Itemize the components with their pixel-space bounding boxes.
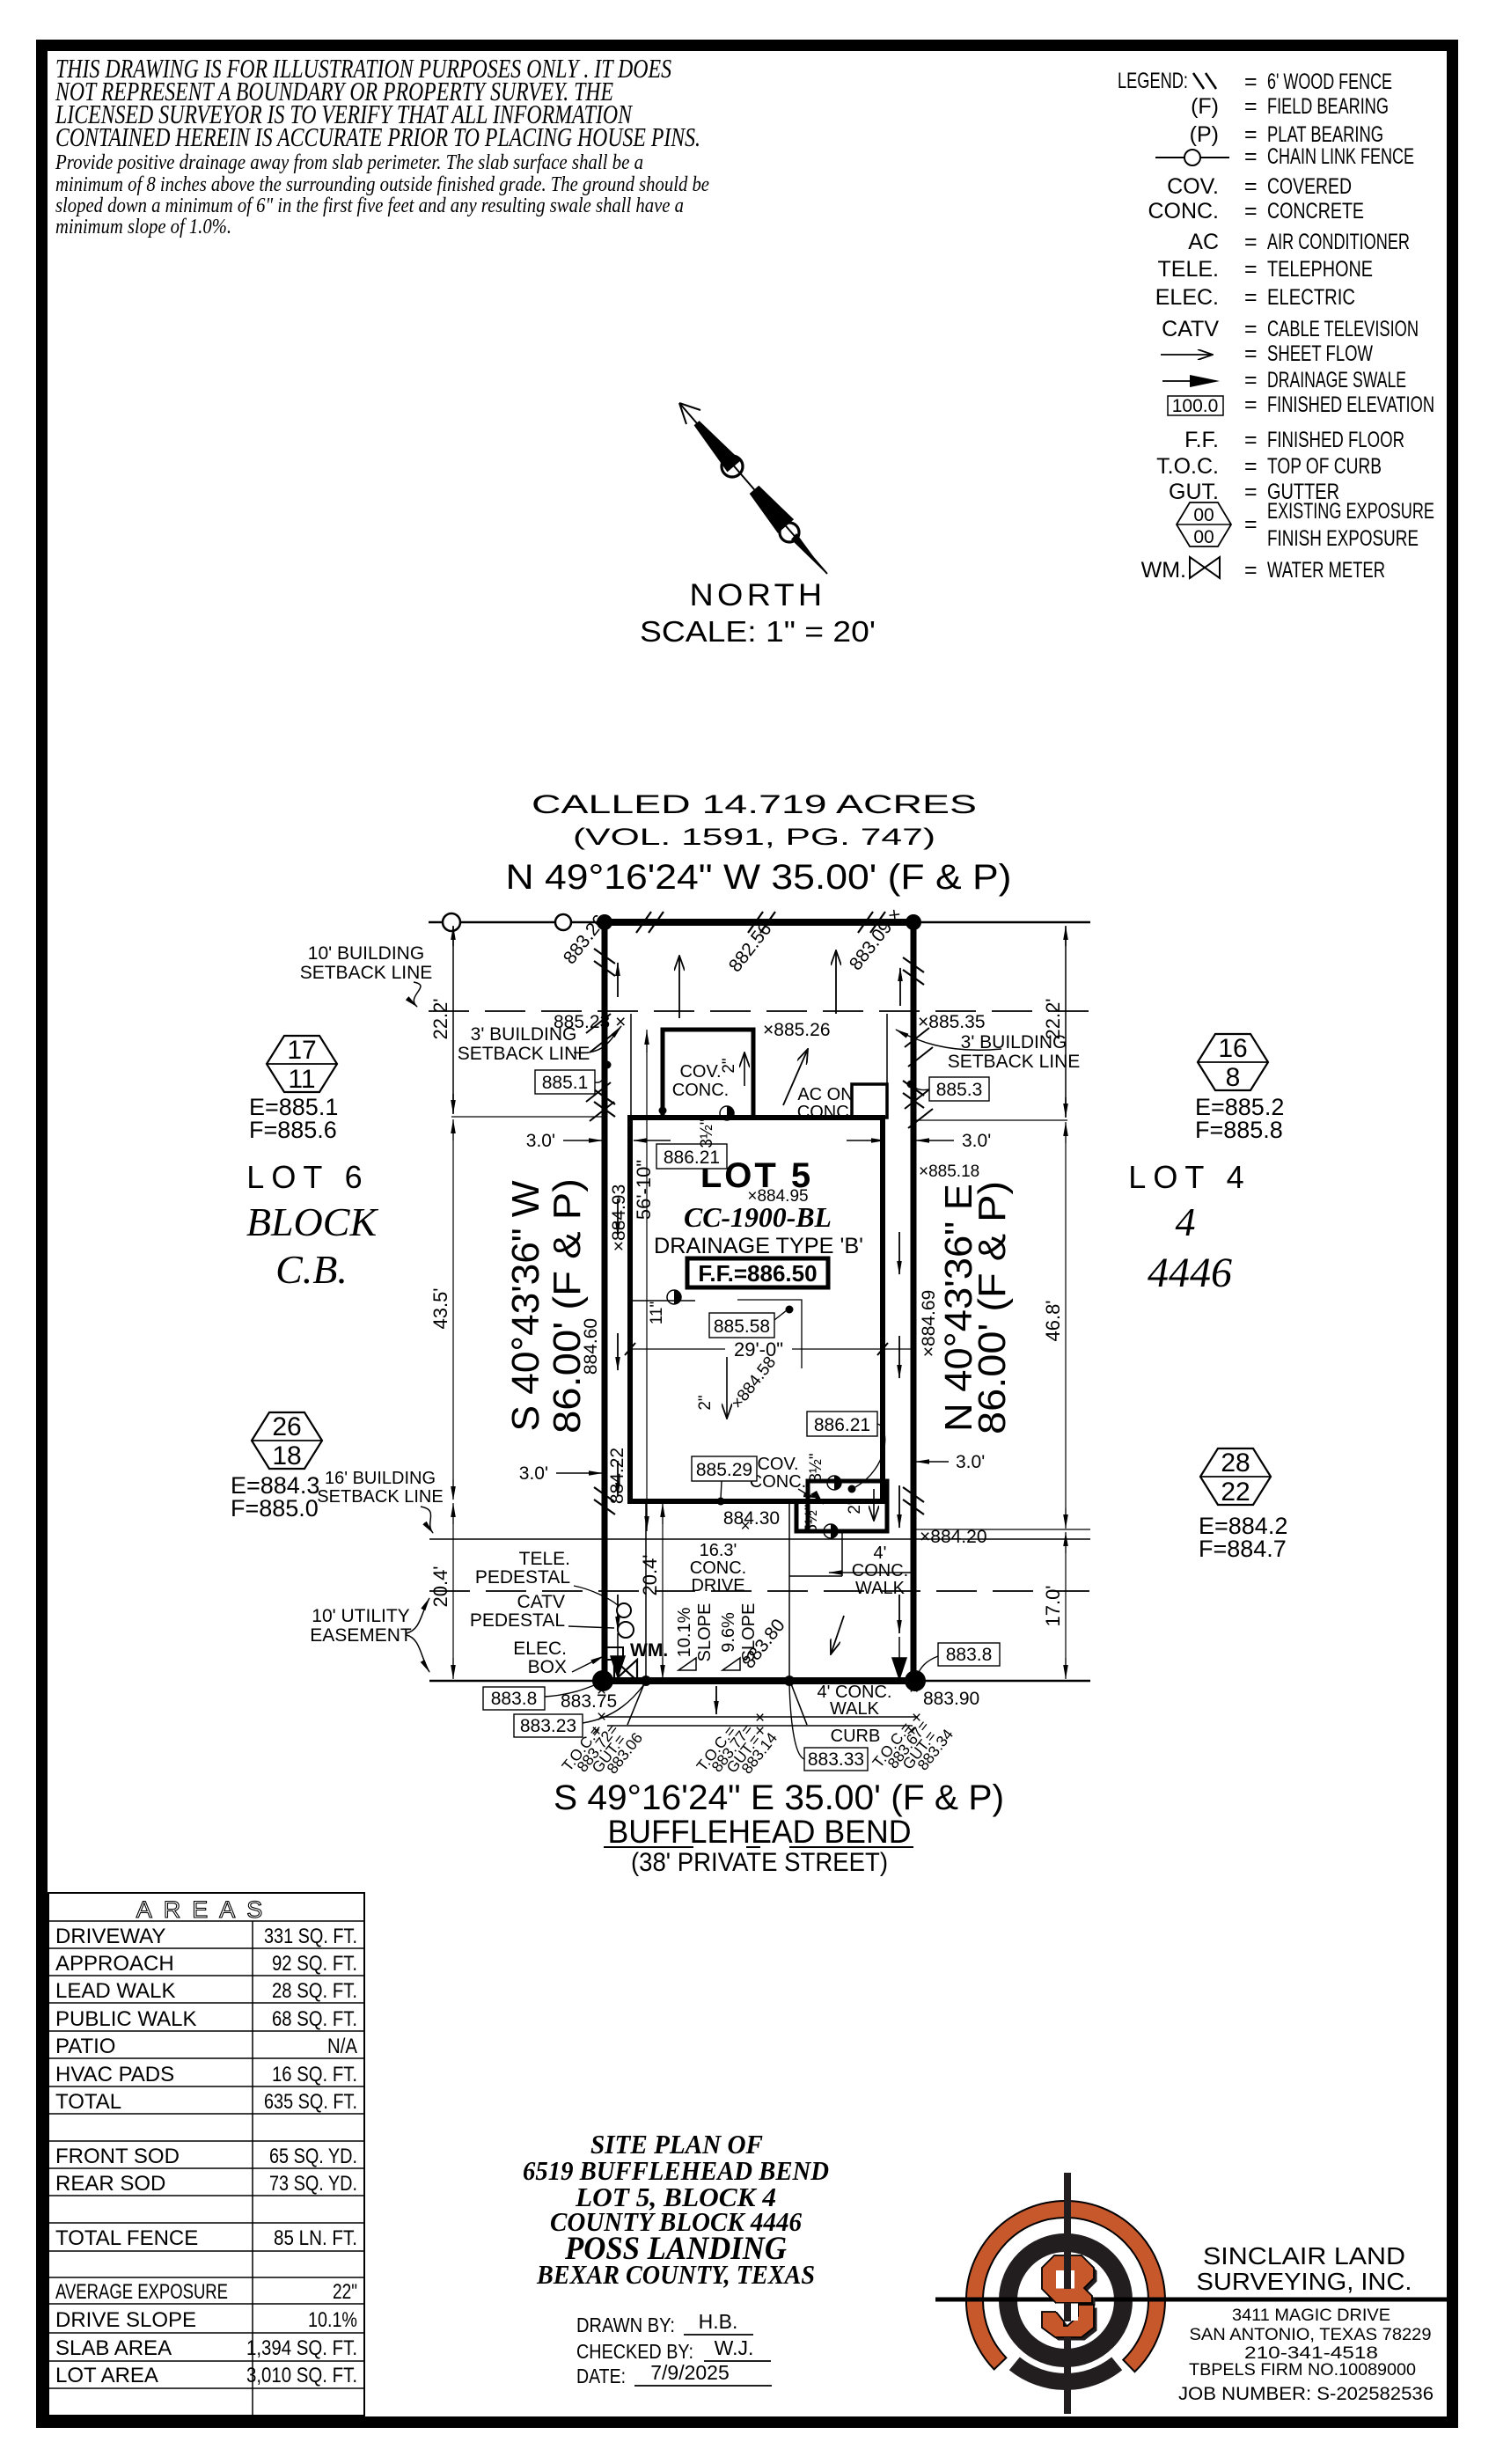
svg-text:SLAB AREA: SLAB AREA [55,2336,172,2360]
svg-text:PATIO: PATIO [55,2035,115,2058]
svg-text:00: 00 [1193,505,1214,525]
svg-text:883.75: 883.75 [561,1691,617,1712]
svg-text:COV.: COV. [757,1455,798,1474]
svg-text:BLOCK: BLOCK [246,1199,379,1244]
svg-text:=: = [1244,199,1258,224]
svg-text:CHAIN LINK FENCE: CHAIN LINK FENCE [1267,144,1414,169]
svg-text:F.F.=886.50: F.F.=886.50 [698,1260,817,1287]
svg-text:9.6%: 9.6% [719,1612,738,1653]
svg-text:FIELD BEARING: FIELD BEARING [1267,94,1389,119]
svg-text:SINCLAIR LAND: SINCLAIR LAND [1203,2242,1405,2270]
svg-text:SCALE: 1" = 20': SCALE: 1" = 20' [640,615,876,648]
svg-text:29'-0": 29'-0" [734,1338,783,1360]
svg-text:3,010 SQ. FT.: 3,010 SQ. FT. [246,2364,357,2387]
svg-text:COVERED: COVERED [1267,174,1352,199]
svg-text:883.90: 883.90 [923,1689,979,1709]
svg-text:28: 28 [1221,1448,1250,1478]
svg-text:20.4': 20.4' [639,1554,661,1595]
svg-text:92 SQ. FT.: 92 SQ. FT. [272,1952,357,1976]
svg-text:SETBACK LINE: SETBACK LINE [300,963,433,983]
svg-text:TOP OF CURB: TOP OF CURB [1267,454,1382,479]
svg-text:3.0': 3.0' [962,1131,991,1151]
svg-text:886.21: 886.21 [814,1415,870,1435]
svg-text:CONC.: CONC. [852,1561,908,1580]
svg-text:26: 26 [272,1412,301,1441]
svg-text:2": 2" [720,1058,738,1073]
svg-text:TELE.: TELE. [519,1549,570,1569]
svg-text:16: 16 [1218,1034,1247,1063]
svg-text:CATV: CATV [1162,317,1219,341]
svg-text:28 SQ. FT.: 28 SQ. FT. [272,1979,357,2003]
svg-text:17: 17 [287,1036,316,1065]
svg-text:LOT 6: LOT 6 [246,1159,369,1195]
svg-text:883.8: 883.8 [946,1645,993,1665]
svg-text:68 SQ. FT.: 68 SQ. FT. [272,2007,357,2031]
svg-text:S 49°16'24" E 35.00' (F &: S 49°16'24" E 35.00' (F & P) [554,1778,1004,1817]
svg-text:10.1%: 10.1% [675,1607,694,1657]
svg-text:SHEET FLOW: SHEET FLOW [1267,341,1373,366]
svg-text:22": 22" [333,2280,357,2304]
svg-text:=: = [1244,257,1258,282]
svg-text:CURB: CURB [831,1727,881,1746]
svg-text:F=885.8: F=885.8 [1195,1117,1283,1143]
svg-text:3.0': 3.0' [526,1131,555,1151]
svg-text:TELE.: TELE. [1158,257,1219,282]
svg-text:TOTAL: TOTAL [55,2090,121,2114]
svg-text:×884.93: ×884.93 [609,1184,629,1252]
svg-text:(VOL. 1591, PG. 747): (VOL. 1591, PG. 747) [573,824,935,850]
svg-text:886.21: 886.21 [664,1148,720,1168]
svg-text:BOX: BOX [528,1657,567,1677]
svg-text:LEAD WALK: LEAD WALK [55,1979,176,2003]
svg-text:TELEPHONE: TELEPHONE [1267,257,1373,282]
svg-text:(38' PRIVATE STREET): (38' PRIVATE STREET) [631,1848,888,1877]
svg-text:10.1%: 10.1% [308,2308,357,2332]
svg-text:885.29: 885.29 [696,1460,752,1480]
svg-text:LOT AREA: LOT AREA [55,2364,158,2387]
svg-text:2": 2" [696,1395,715,1410]
svg-text:FRONT SOD: FRONT SOD [55,2145,180,2168]
svg-text:LEGEND:: LEGEND: [1118,69,1188,93]
svg-text:86.00' (F & P): 86.00' (F & P) [546,1178,589,1434]
svg-text:3½": 3½" [807,1453,825,1482]
svg-text:×: × [740,1517,750,1536]
svg-text:SETBACK LINE: SETBACK LINE [948,1052,1081,1072]
svg-text:×: × [909,1680,919,1698]
svg-text:=: = [1244,368,1258,392]
svg-text:AIR CONDITIONER: AIR CONDITIONER [1267,230,1410,254]
svg-text:883.23: 883.23 [520,1716,576,1736]
svg-text:CONC.: CONC. [750,1472,806,1492]
svg-text:=: = [1244,454,1258,479]
svg-text:WATER METER: WATER METER [1267,558,1385,583]
svg-text:TOTAL FENCE: TOTAL FENCE [55,2226,198,2250]
svg-text:APPROACH: APPROACH [55,1952,174,1976]
svg-text:885.58: 885.58 [714,1316,770,1337]
svg-text:43.5': 43.5' [429,1287,451,1329]
svg-text:SETBACK LINE: SETBACK LINE [317,1487,443,1507]
svg-text:16 SQ. FT.: 16 SQ. FT. [272,2063,357,2086]
svg-text:SURVEYING, INC.: SURVEYING, INC. [1197,2268,1412,2295]
svg-text:6' WOOD FENCE: 6' WOOD FENCE [1267,70,1392,94]
svg-text:F.F.: F.F. [1184,428,1219,452]
svg-text:N 49°16'24" W 35.00' (F &: N 49°16'24" W 35.00' (F & P) [506,858,1012,897]
svg-text:PLAT BEARING: PLAT BEARING [1267,122,1383,147]
svg-text:16' BUILDING: 16' BUILDING [325,1469,436,1488]
svg-text:SLOPE: SLOPE [695,1603,715,1662]
svg-text:DRAINAGE SWALE: DRAINAGE SWALE [1267,368,1406,392]
svg-text:DRAINAGE TYPE 'B': DRAINAGE TYPE 'B' [654,1234,863,1258]
svg-text:CONC.: CONC. [1148,199,1219,224]
svg-text:C.B.: C.B. [275,1247,348,1292]
svg-text:×884.69: ×884.69 [919,1290,939,1358]
svg-text:11": 11" [648,1302,666,1324]
svg-text:×885.18: ×885.18 [919,1162,979,1181]
svg-text:CALLED 14.719 ACRES: CALLED 14.719 ACRES [532,790,977,819]
svg-text:TBPELS FIRM NO.10089000: TBPELS FIRM NO.10089000 [1189,2361,1416,2380]
svg-text:22.2': 22.2' [429,998,451,1039]
svg-text:3.0': 3.0' [519,1463,548,1484]
svg-text:WM.: WM. [1141,558,1186,583]
svg-text:1,394 SQ. FT.: 1,394 SQ. FT. [246,2336,357,2360]
svg-text:CONC.: CONC. [690,1558,746,1578]
svg-text:SETBACK LINE: SETBACK LINE [458,1044,590,1064]
svg-text:CHECKED BY:: CHECKED BY: [576,2340,693,2363]
svg-text:AREAS: AREAS [136,1896,275,1923]
svg-text:COV.: COV. [679,1062,721,1082]
svg-text:EXISTING EXPOSURE: EXISTING EXPOSURE [1267,499,1434,524]
svg-text:DATE:: DATE: [576,2365,626,2387]
svg-text:=: = [1244,317,1258,341]
svg-text:ELEC.: ELEC. [1155,285,1219,310]
svg-text:minimum slope of 1.0%.: minimum slope of 1.0%. [55,216,231,238]
svg-text:CONCRETE: CONCRETE [1267,199,1364,224]
svg-text:73 SQ. YD.: 73 SQ. YD. [269,2172,357,2196]
svg-text:18: 18 [272,1441,301,1470]
svg-text:sloped down a minimum of 6" in: sloped down a minimum of 6" in the first… [55,194,684,217]
svg-text:46.8': 46.8' [1042,1300,1064,1341]
svg-text:3' BUILDING: 3' BUILDING [471,1024,577,1045]
svg-text:=: = [1244,392,1258,417]
svg-text:884.30: 884.30 [723,1508,780,1529]
svg-text:56'-10": 56'-10" [633,1160,655,1220]
svg-text:F=885.6: F=885.6 [249,1117,337,1143]
svg-text:(F): (F) [1191,94,1219,119]
svg-text:=: = [1244,428,1258,452]
svg-text:=: = [1244,230,1258,254]
svg-text:7/9/2025: 7/9/2025 [650,2361,730,2384]
svg-text:GUT.: GUT. [1169,480,1219,504]
svg-text:885.1: 885.1 [542,1073,589,1093]
svg-text:=: = [1244,94,1258,119]
svg-text:WALK: WALK [830,1699,880,1719]
svg-text:85 LN. FT.: 85 LN. FT. [274,2226,357,2250]
svg-text:(P): (P) [1190,122,1219,147]
svg-text:86.00' (F & P): 86.00' (F & P) [971,1181,1014,1434]
svg-text:210-341-4518: 210-341-4518 [1244,2344,1378,2363]
svg-text:PUBLIC WALK: PUBLIC WALK [55,2007,197,2031]
svg-text:×885.26: ×885.26 [763,1020,831,1040]
svg-text:DRIVEWAY: DRIVEWAY [55,1925,165,1948]
svg-text:HVAC PADS: HVAC PADS [55,2063,174,2086]
svg-text:CONTAINED HEREIN IS ACCURATE P: CONTAINED HEREIN IS ACCURATE PRIOR TO PL… [55,121,700,152]
svg-text:=: = [1244,341,1258,366]
svg-text:00: 00 [1193,527,1214,547]
svg-text:CONC.: CONC. [672,1081,729,1100]
svg-text:minimum of 8 inches above the: minimum of 8 inches above the surroundin… [55,173,709,196]
svg-text:BEXAR COUNTY, TEXAS: BEXAR COUNTY, TEXAS [536,2259,815,2290]
svg-text:CC-1900-BL: CC-1900-BL [684,1201,832,1233]
svg-text:WM.: WM. [630,1640,668,1661]
svg-text:8: 8 [1226,1063,1241,1092]
svg-text:4': 4' [874,1544,887,1563]
svg-text:Provide positive drainage away: Provide positive drainage away from slab… [55,151,643,174]
svg-text:=: = [1244,174,1258,199]
svg-text:=: = [1244,558,1258,583]
svg-text:EASEMENT: EASEMENT [310,1625,412,1646]
svg-text:883.33: 883.33 [808,1749,864,1770]
svg-text:=: = [1244,480,1258,504]
svg-text:COV.: COV. [1167,174,1219,199]
svg-text:20.4': 20.4' [429,1566,451,1607]
svg-text:LOT 4: LOT 4 [1128,1159,1250,1195]
svg-text:T.O.C.: T.O.C. [1156,454,1219,479]
svg-text:635 SQ. FT.: 635 SQ. FT. [264,2090,357,2114]
svg-text:10' BUILDING: 10' BUILDING [308,943,424,964]
svg-text:BUFFLEHEAD BEND: BUFFLEHEAD BEND [608,1814,912,1850]
svg-text:=: = [1244,512,1258,537]
svg-text:JOB NUMBER: S-202582536: JOB NUMBER: S-202582536 [1178,2384,1434,2404]
svg-text:ELECTRIC: ELECTRIC [1267,285,1355,310]
svg-text:22: 22 [1221,1478,1250,1507]
svg-text:CATV: CATV [517,1592,565,1612]
svg-text:3.0': 3.0' [956,1452,985,1472]
svg-text:FINISHED FLOOR: FINISHED FLOOR [1267,428,1404,452]
svg-text:CABLE TELEVISION: CABLE TELEVISION [1267,317,1419,341]
svg-text:AVERAGE EXPOSURE: AVERAGE EXPOSURE [55,2280,228,2304]
svg-text:11: 11 [288,1065,315,1094]
svg-text:=: = [1244,122,1258,147]
svg-text:331 SQ. FT.: 331 SQ. FT. [264,1925,357,1948]
svg-text:16.3': 16.3' [700,1541,737,1560]
svg-text:F=885.0: F=885.0 [231,1495,319,1522]
svg-text:H.B.: H.B. [699,2310,738,2333]
svg-text:WALK: WALK [855,1579,906,1598]
svg-text:×: × [597,1682,606,1700]
svg-text:PEDESTAL: PEDESTAL [470,1610,565,1631]
svg-text:=: = [1244,70,1258,94]
svg-text:REAR SOD: REAR SOD [55,2172,165,2196]
svg-text:883.8: 883.8 [491,1689,538,1709]
svg-text:F=884.7: F=884.7 [1199,1536,1287,1562]
svg-text:=: = [1244,144,1258,169]
svg-text:885.3: 885.3 [936,1080,983,1100]
svg-text:4: 4 [1176,1199,1196,1244]
svg-text:PEDESTAL: PEDESTAL [475,1567,570,1588]
svg-text:AC ON: AC ON [797,1085,853,1104]
svg-text:DRAWN BY:: DRAWN BY: [576,2314,675,2336]
svg-text:SAN ANTONIO, TEXAS 78229: SAN ANTONIO, TEXAS 78229 [1190,2326,1432,2344]
svg-text:FINISH EXPOSURE: FINISH EXPOSURE [1267,526,1419,551]
svg-text:DRIVE SLOPE: DRIVE SLOPE [55,2308,196,2332]
svg-text:100.0: 100.0 [1172,396,1219,416]
svg-text:65 SQ. YD.: 65 SQ. YD. [269,2145,357,2168]
svg-text:3½": 3½" [698,1118,716,1148]
svg-text:4446: 4446 [1148,1250,1232,1296]
svg-text:N/A: N/A [327,2035,357,2058]
svg-text:DRIVE: DRIVE [691,1576,744,1595]
svg-text:3411 MAGIC DRIVE: 3411 MAGIC DRIVE [1232,2306,1390,2325]
svg-text:5½": 5½" [803,1504,821,1533]
svg-text:S 40°43'36" W: S 40°43'36" W [504,1180,547,1431]
svg-text:2": 2" [846,1499,864,1514]
svg-text:10' UTILITY: 10' UTILITY [312,1606,409,1626]
svg-text:W.J.: W.J. [715,2336,754,2359]
svg-text:FINISHED ELEVATION: FINISHED ELEVATION [1267,392,1434,417]
svg-text:ELEC.: ELEC. [513,1639,567,1659]
svg-text:×884.20: ×884.20 [920,1527,987,1547]
svg-text:NORTH: NORTH [690,578,826,612]
svg-text:=: = [1244,285,1258,310]
svg-text:AC: AC [1188,230,1219,254]
